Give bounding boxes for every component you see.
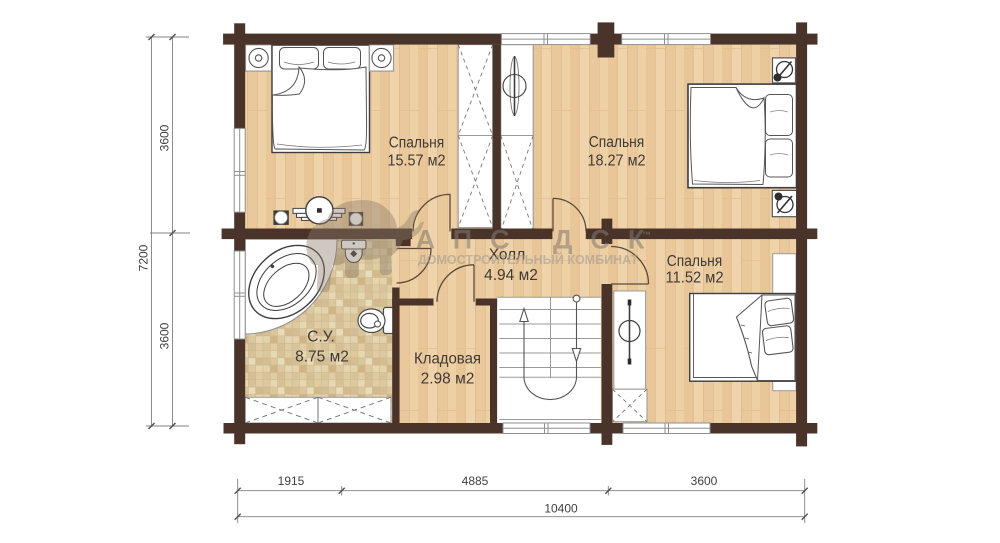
svg-text:™: ™ — [642, 230, 651, 240]
svg-text:Спальня: Спальня — [667, 253, 723, 270]
svg-text:15.57 м2: 15.57 м2 — [388, 153, 446, 170]
svg-text:4.94 м2: 4.94 м2 — [484, 267, 538, 284]
svg-text:10400: 10400 — [544, 502, 578, 516]
svg-text:2.98 м2: 2.98 м2 — [421, 371, 475, 388]
svg-text:18.27 м2: 18.27 м2 — [588, 153, 646, 170]
svg-text:3600: 3600 — [158, 322, 172, 349]
svg-text:С.У.: С.У. — [307, 329, 335, 346]
svg-text:Спальня: Спальня — [389, 134, 445, 151]
svg-text:АПС ДСК: АПС ДСК — [416, 225, 663, 255]
svg-text:3600: 3600 — [158, 124, 172, 151]
svg-text:Кладовая: Кладовая — [414, 351, 481, 368]
svg-text:11.52 м2: 11.52 м2 — [666, 270, 724, 287]
svg-text:4885: 4885 — [462, 474, 489, 488]
svg-text:7200: 7200 — [137, 244, 151, 271]
svg-text:1915: 1915 — [278, 474, 305, 488]
svg-text:8.75 м2: 8.75 м2 — [295, 349, 349, 366]
svg-text:3600: 3600 — [691, 474, 718, 488]
svg-text:ДОМОСТРОИТЕЛЬНЫЙ КОМБИНАТ: ДОМОСТРОИТЕЛЬНЫЙ КОМБИНАТ — [418, 252, 639, 267]
svg-text:Спальня: Спальня — [589, 134, 645, 151]
